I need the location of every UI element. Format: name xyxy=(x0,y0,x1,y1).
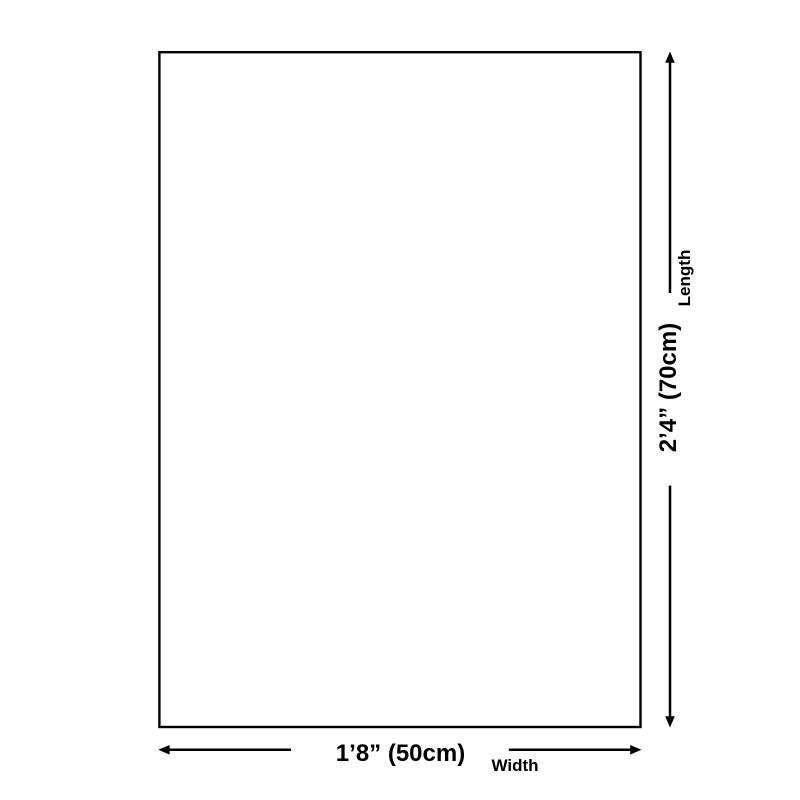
svg-text:2’4” (70cm): 2’4” (70cm) xyxy=(655,323,682,452)
svg-text:Length: Length xyxy=(675,250,694,307)
svg-text:Width: Width xyxy=(491,756,538,775)
svg-text:1’8” (50cm): 1’8” (50cm) xyxy=(336,740,465,767)
